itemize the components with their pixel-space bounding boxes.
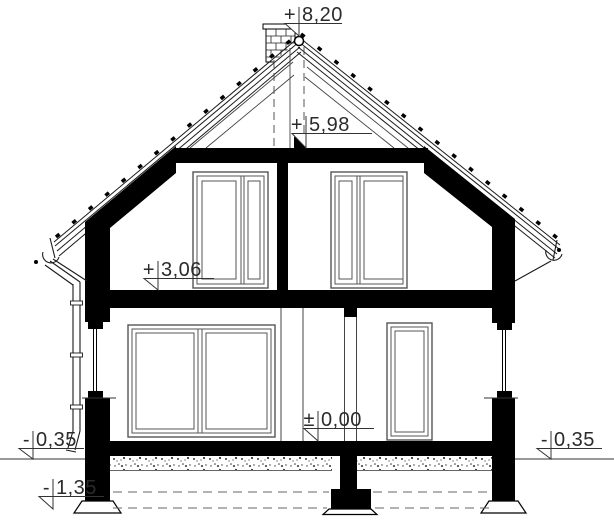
level-sign: - [541, 429, 548, 451]
level-sign: + [143, 259, 155, 281]
soffit-left [53, 259, 87, 281]
house-cross-section-drawing: + 8,20 + 5,98 + 3,06 ± 0,00 [0, 0, 614, 526]
level-sign: + [291, 114, 303, 136]
level-sign: + [284, 4, 296, 26]
footing-base-center [323, 509, 377, 515]
level-sign: - [23, 429, 30, 451]
footing-base-right [481, 501, 526, 513]
ground-window-left [128, 325, 275, 437]
level-marker-first-floor: + 3,06 [143, 259, 214, 290]
level-marker-ground-floor: ± 0,00 [304, 409, 374, 441]
level-value: 5,98 [309, 114, 350, 136]
level-value: 0,00 [321, 409, 362, 431]
pipe-clamp [71, 301, 83, 305]
foundation-wall-right [492, 443, 515, 501]
window-section-left [82, 322, 116, 398]
level-sign: - [43, 477, 50, 499]
interior-lintel [344, 308, 357, 317]
foundation-wall-center [340, 456, 357, 490]
ridge-cap [295, 37, 304, 46]
downspout-left [45, 261, 83, 452]
level-value: 0,35 [36, 429, 77, 451]
window-section-right [484, 323, 518, 398]
exterior-wall-left-lower [85, 398, 110, 443]
attic-door-left [193, 172, 268, 288]
ground-floor-slab [85, 441, 515, 456]
excavation-lines [113, 492, 489, 508]
level-value: 1,35 [56, 477, 97, 499]
gutter-left [34, 238, 87, 281]
chimney-attic-column [277, 163, 288, 290]
ground-door-right [387, 323, 432, 440]
level-marker-terrain-left: - 0,35 [19, 429, 84, 459]
level-value: 0,35 [554, 429, 595, 451]
fascia-right [553, 240, 557, 260]
attic-door-right [331, 172, 407, 288]
footing-base-left [74, 501, 121, 513]
subbase-layer [110, 456, 492, 471]
fascia-left [50, 238, 55, 258]
soffit-right [515, 261, 551, 281]
level-value: 3,06 [161, 259, 202, 281]
cut-structure [85, 146, 515, 509]
level-value: 8,20 [302, 4, 343, 26]
pipe-clamp [71, 405, 83, 409]
level-marker-terrain-right: - 0,35 [537, 429, 602, 459]
attic-floor-slab [85, 290, 515, 308]
footing-center [331, 489, 371, 509]
pipe-clamp [71, 353, 83, 357]
collar-ceiling-slab [176, 148, 428, 163]
gutter-bracket-left [34, 260, 38, 264]
gutter-bracket-right [557, 248, 561, 252]
level-sign: ± [304, 409, 315, 431]
exterior-wall-right-lower [492, 398, 515, 443]
